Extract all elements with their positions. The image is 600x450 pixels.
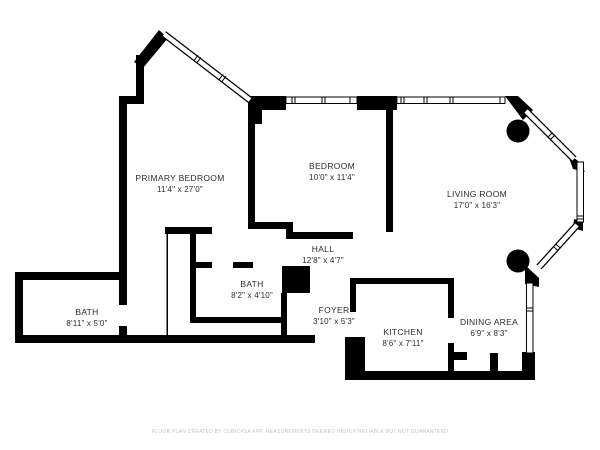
window-diagonal-se (539, 225, 577, 267)
window-diagonal-nw (164, 34, 250, 100)
window-diagonal-ne (526, 111, 574, 159)
windows (164, 34, 584, 353)
floor-plan-page: PRIMARY BEDROOM 11'4" x 27'0" BEDROOM 10… (0, 0, 600, 450)
window-right-upper (577, 162, 584, 222)
walls (15, 30, 585, 380)
column-lower (507, 250, 530, 273)
columns (507, 120, 530, 273)
window-right-dining (527, 283, 534, 353)
column-upper (507, 120, 530, 143)
footer-disclaimer: FLOOR PLAN CREATED BY CUBICASA APP. MEAS… (0, 429, 600, 435)
floor-plan-drawing (0, 0, 600, 450)
window-top-right (397, 97, 505, 104)
